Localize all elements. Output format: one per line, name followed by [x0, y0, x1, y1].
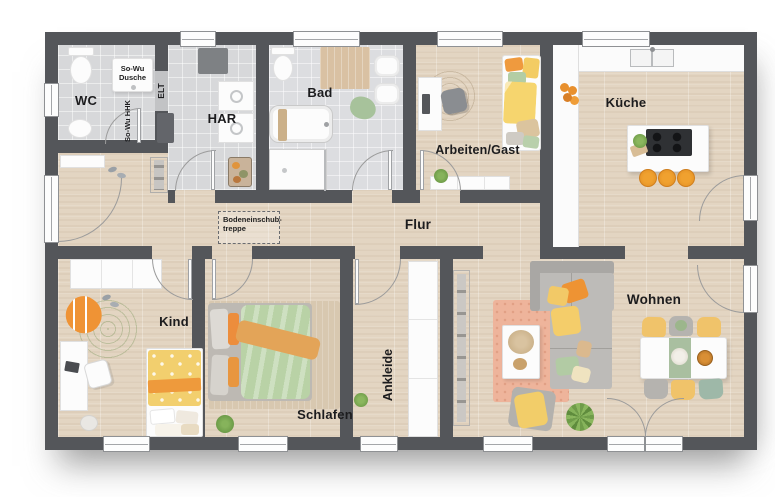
- window-bad: [293, 31, 360, 47]
- window-wc: [44, 83, 59, 117]
- room-label-wohnen: Wohnen: [618, 292, 690, 307]
- chair-cushion: [675, 320, 687, 331]
- shoe-shelf: [150, 157, 168, 193]
- window-ankleide: [360, 436, 398, 452]
- wall-mid-e: [546, 246, 625, 259]
- tray: [513, 358, 527, 370]
- entry-door-arc: [58, 178, 122, 242]
- attic-stairs-label: Bodeneinschub- treppe: [223, 215, 279, 233]
- pillow: [155, 424, 183, 436]
- pillow: [149, 408, 175, 425]
- wall-mid-a: [58, 246, 152, 259]
- shower-drain: [131, 85, 136, 90]
- wall-mid-b: [192, 246, 212, 259]
- floor-plan: So-Wu Dusche WC ELT: [45, 32, 757, 450]
- floor-plan-canvas: So-Wu Dusche WC ELT: [0, 0, 775, 497]
- window-kueche: [582, 31, 650, 47]
- laundry-item: [232, 162, 240, 169]
- monitor: [422, 94, 430, 114]
- sofa-armrest: [530, 261, 540, 311]
- desk: [418, 77, 442, 131]
- elt-label: ELT: [155, 71, 167, 111]
- kind-bed: [146, 348, 203, 437]
- room-label-schlafen: Schlafen: [286, 407, 364, 422]
- wohnen-terrace-door-arc: [697, 265, 745, 313]
- arbeiten-door-leaf: [420, 150, 424, 190]
- ankleide-wardrobe: [408, 261, 438, 437]
- room-label-kind: Kind: [153, 314, 195, 329]
- kitchen-island: [627, 125, 709, 172]
- bath-faucet: [324, 122, 329, 127]
- hall-shelf: [453, 270, 470, 426]
- toilet-bad: [273, 55, 293, 81]
- window-har: [180, 31, 216, 47]
- entry-door: [44, 175, 59, 243]
- sink-faucet: [650, 47, 655, 52]
- fruit-bowl: [697, 350, 713, 366]
- bathtub: [269, 105, 333, 143]
- french-door-arc-right: [645, 398, 684, 437]
- guest-bed: [502, 55, 541, 151]
- plant: [354, 393, 368, 407]
- shower-tray: So-Wu Dusche: [112, 58, 153, 92]
- dining-chair: [671, 380, 695, 400]
- kind-door-arc: [152, 259, 193, 300]
- bath-caddy: [278, 109, 287, 141]
- palm-plant: [566, 403, 594, 431]
- sink-divider: [651, 50, 653, 66]
- kind-desk: [60, 341, 88, 411]
- window-wohnen: [483, 436, 533, 452]
- dining-chair: [642, 317, 667, 338]
- attic-label-line1: Bodeneinschub-: [223, 215, 279, 224]
- wall-mid-c: [252, 246, 355, 259]
- wall-top-band-a: [168, 190, 175, 203]
- toilet-tank-bad: [271, 47, 295, 55]
- bar-stool: [639, 169, 657, 187]
- room-label-har: HAR: [194, 111, 250, 126]
- bidet: [68, 119, 92, 138]
- wall-bad-arbeiten: [403, 45, 416, 203]
- har-cabinet: [198, 48, 228, 74]
- ankleide-door-arc: [355, 259, 401, 305]
- window-kind: [103, 436, 150, 452]
- wood-mat: [320, 47, 370, 89]
- wall-har-bad: [256, 45, 269, 203]
- window-schlaf: [238, 436, 288, 452]
- elt-cabinet: [157, 113, 174, 143]
- dining-chair: [644, 379, 668, 399]
- dining-chair: [669, 316, 693, 336]
- pouf: [80, 415, 98, 431]
- pillow: [504, 57, 524, 72]
- shower-label-line1: So-Wu: [113, 64, 152, 73]
- har-door-leaf: [211, 150, 215, 190]
- blanket-orange: [148, 378, 202, 394]
- shower-label-line2: Dusche: [113, 73, 152, 82]
- washer: [218, 81, 254, 111]
- washer-door: [230, 90, 243, 103]
- toilet: [70, 56, 92, 84]
- kueche-terrace-door-arc: [699, 175, 745, 221]
- coffee-table: [502, 325, 540, 379]
- room-label-ankleide: Ankleide: [381, 340, 395, 410]
- cooktop: [646, 129, 692, 156]
- kitchen-sink: [630, 49, 674, 67]
- attic-label-line2: treppe: [223, 224, 279, 233]
- wall-top-band-b: [215, 190, 352, 203]
- schlafen-door-leaf: [212, 259, 216, 299]
- room-label-kueche: Küche: [596, 95, 656, 110]
- laptop: [64, 361, 80, 373]
- schlafen-door-arc: [212, 259, 253, 300]
- dining-chair: [698, 378, 723, 400]
- attic-stairs-outline: Bodeneinschub- treppe: [218, 211, 280, 244]
- kind-chair: [83, 358, 113, 389]
- kitchen-counter-left: [553, 45, 579, 247]
- dining-chair: [697, 317, 721, 337]
- shower-label: So-Wu Dusche: [113, 64, 152, 82]
- toilet-tank: [68, 47, 94, 56]
- room-label-flur: Flur: [388, 217, 448, 232]
- wall-mid-d: [400, 246, 483, 259]
- french-door-arc-left: [607, 398, 646, 437]
- bar-stool: [658, 169, 676, 187]
- pillow: [547, 285, 570, 306]
- kind-door-leaf: [188, 259, 192, 299]
- washbasin: [374, 55, 400, 77]
- plant: [216, 415, 234, 433]
- window-arbeiten: [437, 31, 503, 47]
- wall-mid-f: [688, 246, 744, 259]
- kind-wardrobe: [70, 259, 162, 289]
- dining-table: [640, 337, 727, 379]
- wohnen-terrace-door: [743, 265, 758, 313]
- shoe: [107, 166, 117, 174]
- shower-drain: [282, 168, 287, 173]
- wc-door-leaf: [137, 108, 141, 143]
- double-bed: [208, 303, 312, 401]
- ankleide-door-leaf: [355, 259, 359, 304]
- laundry-basket: [228, 157, 252, 187]
- pillow: [550, 305, 582, 337]
- herb-plant: [633, 134, 647, 148]
- wall-ankleide-wohnen: [440, 259, 453, 437]
- pillow: [175, 410, 198, 425]
- shower-glass: [324, 150, 326, 191]
- room-label-wc: WC: [60, 93, 112, 108]
- throw-yellow: [513, 391, 548, 430]
- centerpiece: [671, 348, 688, 365]
- bad-door-leaf: [388, 150, 392, 190]
- bar-stool: [677, 169, 695, 187]
- kueche-terrace-door: [743, 175, 758, 221]
- french-door: [607, 436, 683, 452]
- room-label-bad: Bad: [296, 85, 344, 100]
- dried-plant: [508, 330, 534, 354]
- accent-pillow: [228, 357, 239, 387]
- pillow: [181, 424, 199, 435]
- desk-chair: [440, 87, 468, 115]
- entry-bench: [60, 155, 105, 168]
- shower-cubicle: [269, 149, 327, 190]
- french-door-divider: [644, 437, 646, 451]
- laundry-item: [233, 176, 241, 183]
- fruit-bowl: [560, 83, 569, 92]
- washbasin: [374, 83, 400, 105]
